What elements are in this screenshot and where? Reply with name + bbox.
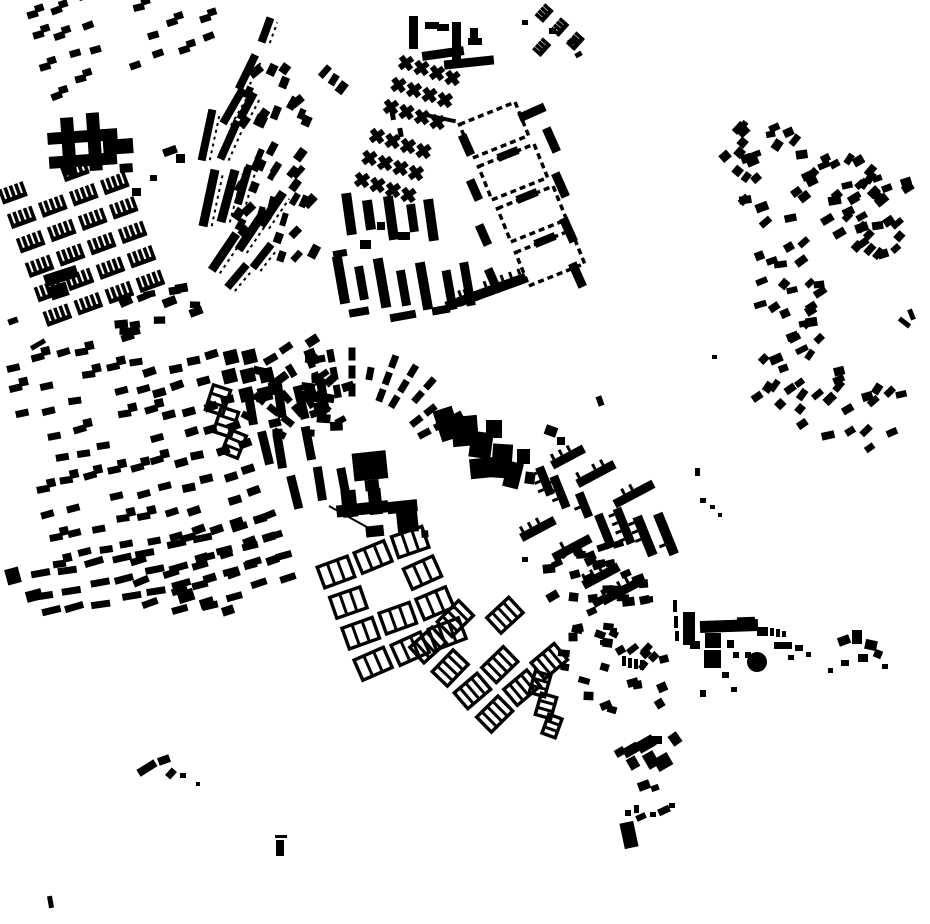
cluster-slab-rows-lower [332,249,476,322]
cluster-stray-dot-sw [47,896,54,909]
cluster-east-slab-district [516,439,679,605]
cluster-industrial-east-bits [806,630,888,673]
cluster-east-village-mid [753,216,827,345]
cluster-ne-comb-cluster [532,3,585,57]
cluster-hash-east-bits [132,145,185,196]
cluster-stray-building-s [275,835,287,856]
cluster-school-complex-s [331,447,429,547]
cluster-west-grid-a [6,326,183,569]
cluster-east-village-north [718,120,914,260]
cluster-se-courtyards-c [529,671,562,738]
cluster-ne-comb-dots [522,20,583,58]
cluster-se-village-column [558,623,619,715]
cluster-west-grid-b [142,349,280,584]
cluster-mid-west-houses [114,283,203,335]
cluster-south-chain [619,779,675,849]
cluster-top-center-bars [409,16,494,70]
cluster-curved-slab-band [198,16,291,292]
cluster-star-towers-south [354,128,432,203]
cluster-dashed-block-edges [458,103,587,291]
cluster-nw-scatter [26,0,217,101]
cluster-hash-building [46,110,135,178]
building-footprint-map [0,0,930,924]
cluster-storage-tank [747,652,767,672]
cluster-south-tick-slabs [443,267,528,310]
figure-ground-map [0,0,930,924]
cluster-stray-sw-cluster [136,754,200,786]
cluster-slab-rows-upper [341,193,439,249]
cluster-se-mixed-bits [615,642,669,709]
cluster-south-zigzag-complex [614,731,683,772]
cluster-east-village-south [751,344,908,453]
cluster-east-arc-mark [898,308,916,328]
cluster-industrial-complex [683,612,803,697]
